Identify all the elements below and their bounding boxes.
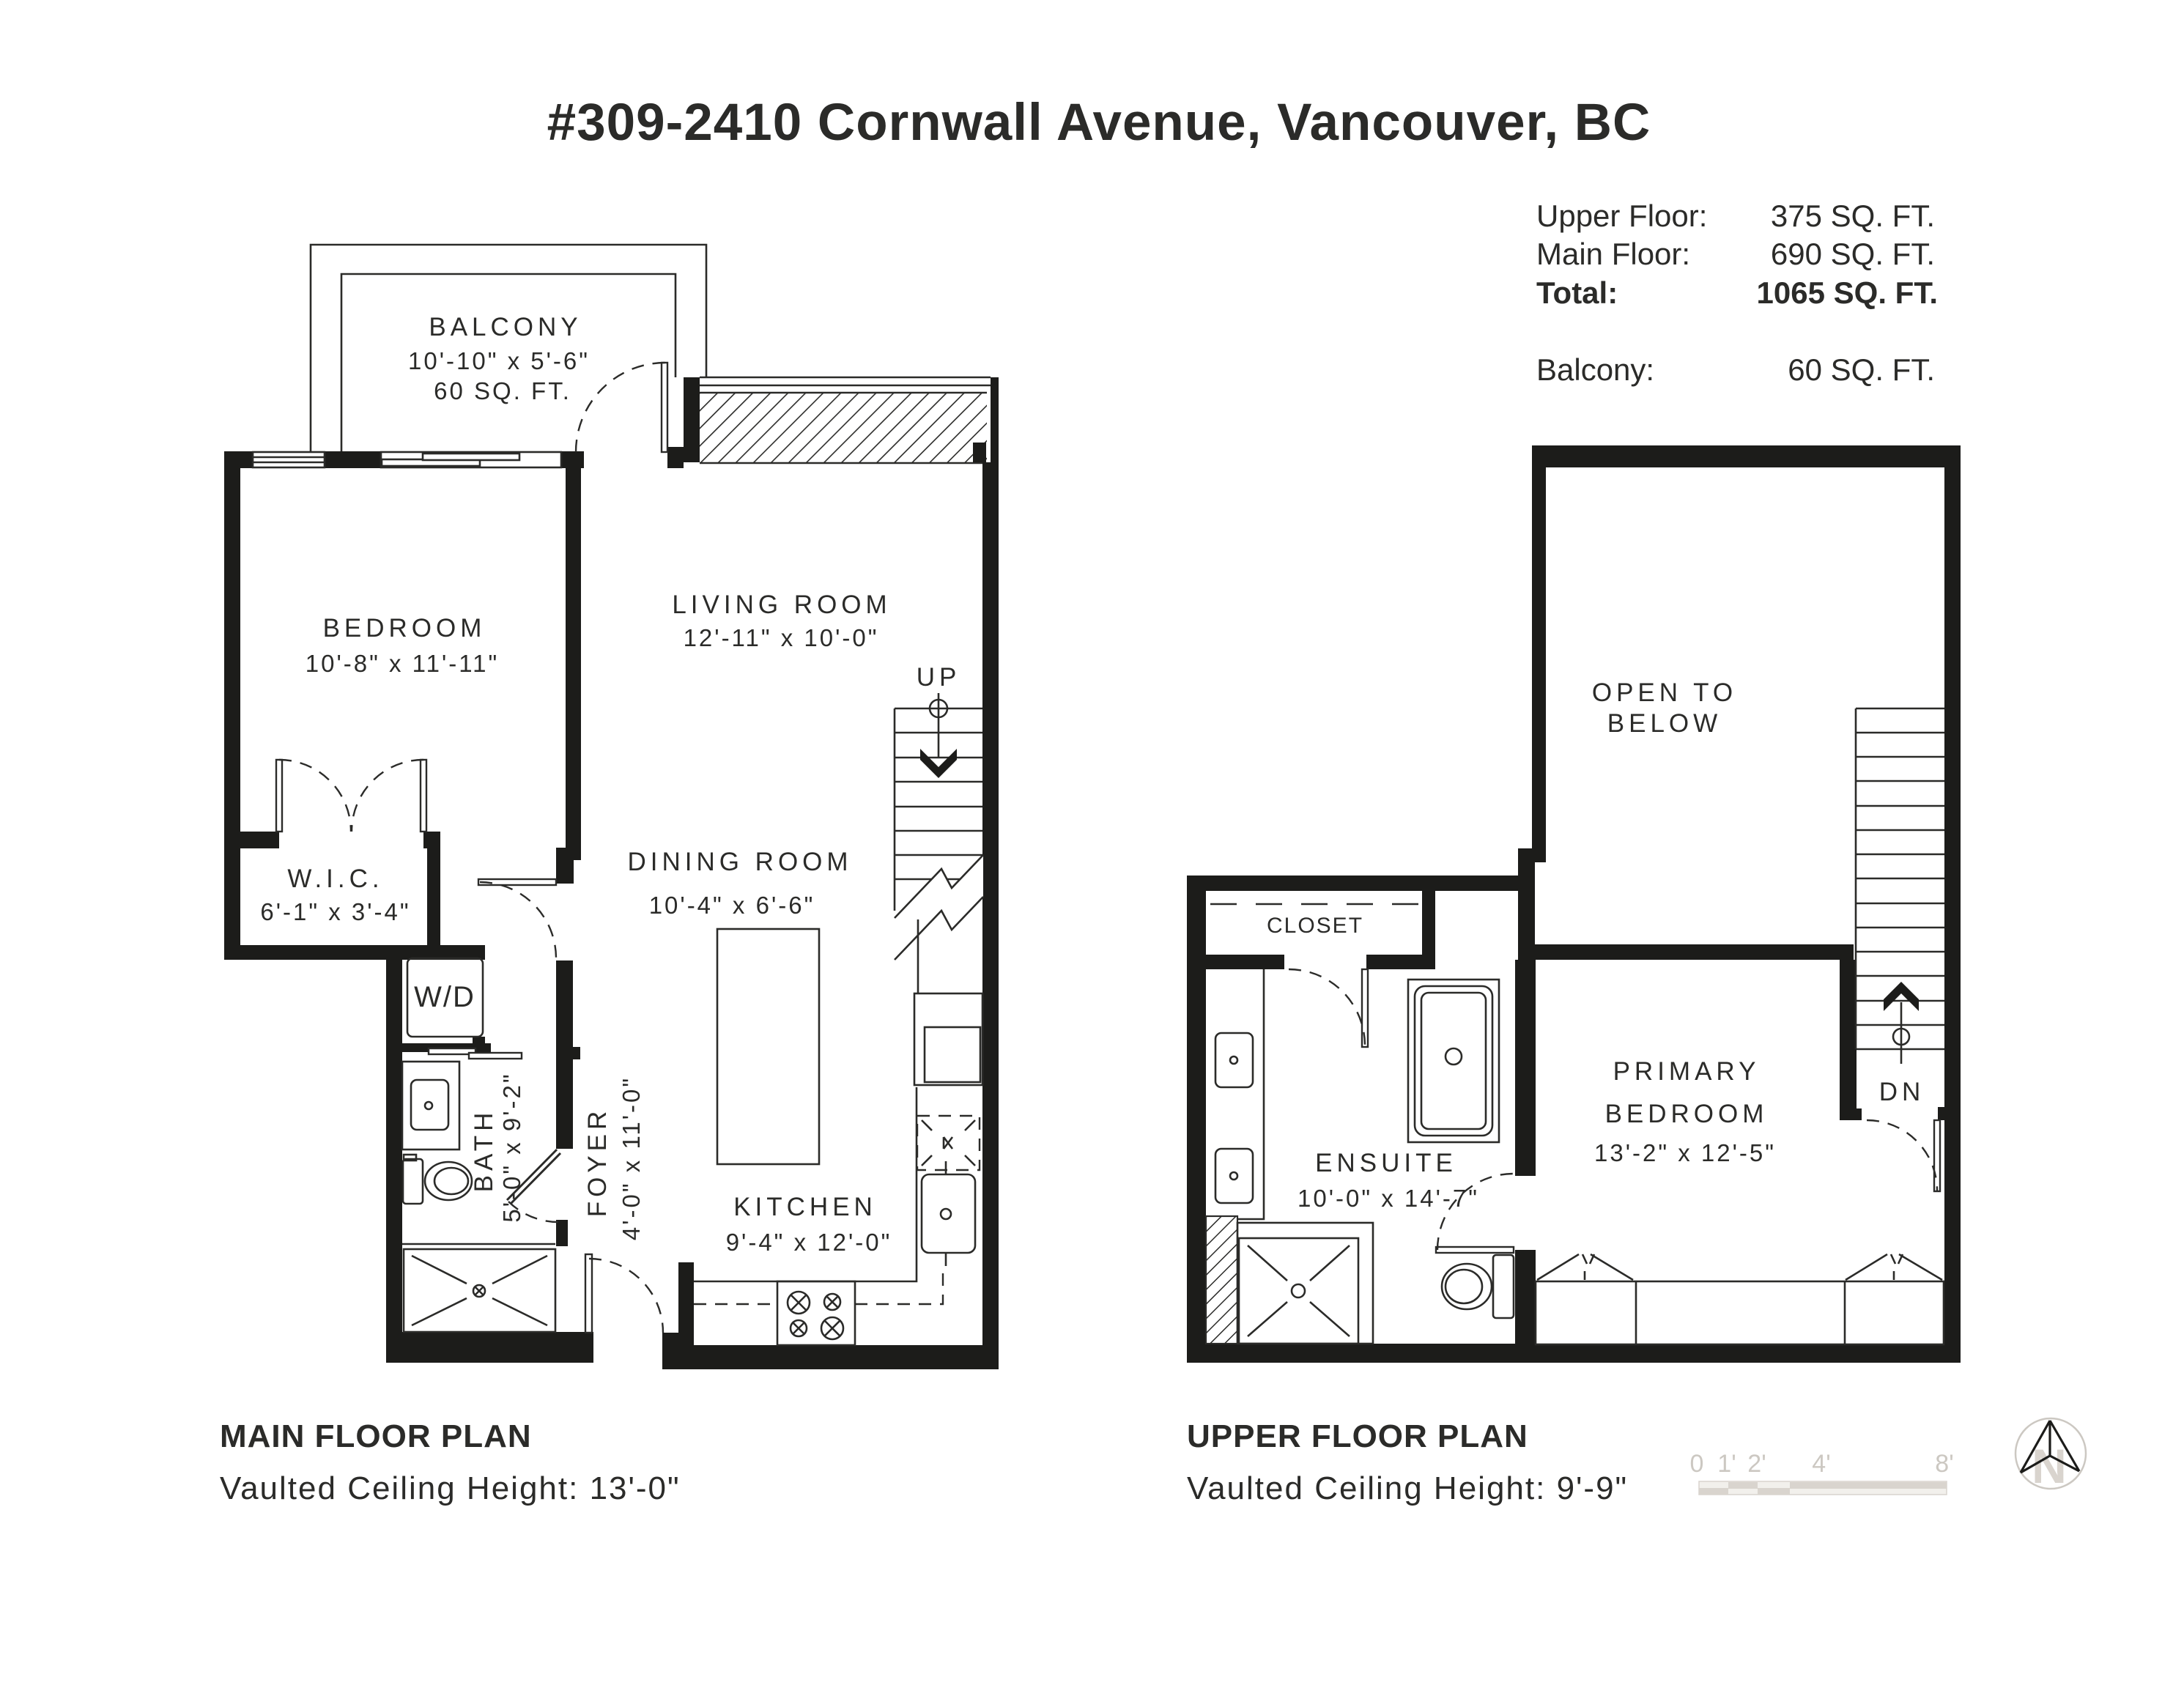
svg-text:PRIMARY: PRIMARY [1613, 1057, 1761, 1086]
svg-text:0: 0 [1690, 1450, 1704, 1478]
svg-text:12'-11" x 10'-0": 12'-11" x 10'-0" [684, 624, 879, 651]
svg-text:4'-0" x 11'-0": 4'-0" x 11'-0" [618, 1076, 645, 1240]
svg-text:BELOW: BELOW [1607, 709, 1722, 738]
svg-text:#309-2410 Cornwall Avenue, Van: #309-2410 Cornwall Avenue, Vancouver, BC [547, 94, 1651, 152]
svg-text:10'-4" x 6'-6": 10'-4" x 6'-6" [649, 892, 815, 919]
svg-text:9'-4" x 12'-0": 9'-4" x 12'-0" [726, 1229, 892, 1256]
svg-text:UP: UP [917, 663, 961, 692]
svg-text:10'-10" x 5'-6": 10'-10" x 5'-6" [408, 347, 590, 374]
svg-text:2': 2' [1747, 1450, 1766, 1478]
svg-text:DN: DN [1879, 1078, 1925, 1106]
svg-text:KITCHEN: KITCHEN [733, 1193, 877, 1221]
svg-text:FOYER: FOYER [583, 1107, 612, 1218]
svg-text:W.I.C.: W.I.C. [287, 865, 383, 893]
svg-text:6'-1" x 3'-4": 6'-1" x 3'-4" [260, 898, 410, 925]
svg-text:OPEN TO: OPEN TO [1592, 678, 1737, 707]
svg-text:UPPER FLOOR PLAN: UPPER FLOOR PLAN [1187, 1418, 1528, 1454]
svg-text:60 SQ. FT.: 60 SQ. FT. [1788, 352, 1935, 387]
svg-text:5'-0" x 9'-2": 5'-0" x 9'-2" [498, 1072, 525, 1222]
svg-text:1065 SQ. FT.: 1065 SQ. FT. [1757, 275, 1938, 310]
svg-text:LIVING ROOM: LIVING ROOM [672, 591, 891, 619]
svg-text:4': 4' [1812, 1450, 1830, 1478]
svg-text:Balcony:: Balcony: [1536, 352, 1654, 387]
svg-text:BATH: BATH [470, 1108, 498, 1193]
svg-text:690 SQ. FT.: 690 SQ. FT. [1771, 237, 1935, 271]
svg-text:Vaulted Ceiling Height: 9'-9": Vaulted Ceiling Height: 9'-9" [1187, 1470, 1628, 1506]
svg-text:8': 8' [1935, 1450, 1953, 1478]
svg-text:BEDROOM: BEDROOM [323, 614, 486, 643]
svg-text:10'-0" x 14'-7": 10'-0" x 14'-7" [1298, 1185, 1479, 1212]
svg-text:Upper Floor:: Upper Floor: [1536, 199, 1707, 233]
svg-text:BALCONY: BALCONY [429, 313, 582, 341]
svg-text:10'-8" x 11'-11": 10'-8" x 11'-11" [306, 650, 499, 677]
svg-text:BEDROOM: BEDROOM [1605, 1100, 1769, 1128]
svg-text:60 SQ. FT.: 60 SQ. FT. [434, 377, 571, 404]
svg-text:CLOSET: CLOSET [1267, 914, 1363, 938]
svg-text:ENSUITE: ENSUITE [1315, 1149, 1457, 1177]
svg-text:375 SQ. FT.: 375 SQ. FT. [1771, 199, 1935, 233]
svg-text:DINING ROOM: DINING ROOM [627, 848, 852, 876]
svg-text:Main Floor:: Main Floor: [1536, 237, 1690, 271]
svg-text:MAIN FLOOR PLAN: MAIN FLOOR PLAN [220, 1418, 532, 1454]
svg-text:W/D: W/D [414, 981, 475, 1013]
svg-text:13'-2" x 12'-5": 13'-2" x 12'-5" [1594, 1139, 1776, 1166]
svg-text:Total:: Total: [1536, 275, 1618, 310]
svg-text:1': 1' [1717, 1450, 1736, 1478]
svg-text:Vaulted Ceiling Height: 13'-0": Vaulted Ceiling Height: 13'-0" [220, 1470, 681, 1506]
